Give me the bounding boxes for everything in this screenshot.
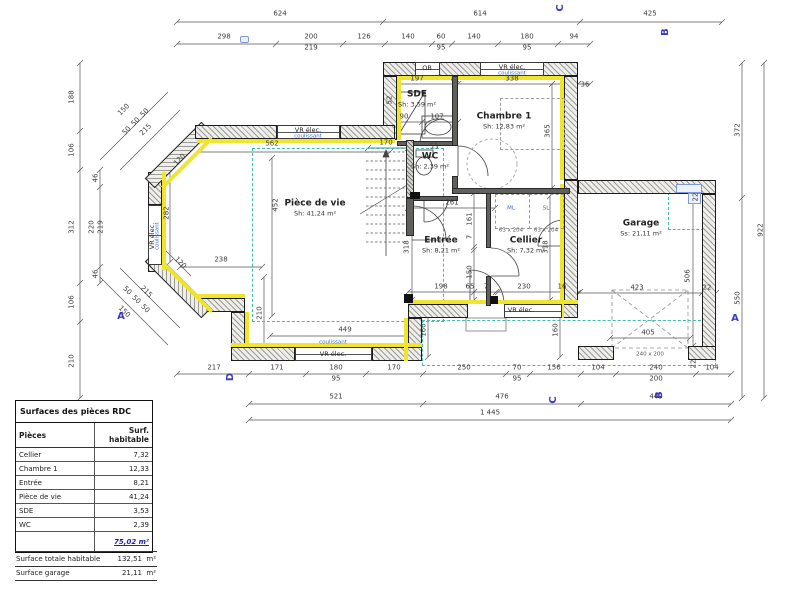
room-area: Sh: 8,21 m² (422, 247, 460, 255)
summary-value: 21,11 (122, 569, 142, 577)
dimension-label: 104 (591, 365, 604, 372)
room-area: Sh: 41,24 m² (284, 210, 345, 218)
dimension-label: 550 (735, 291, 742, 304)
dimension-label: 46 (93, 270, 100, 279)
dimension-label: 180 (329, 365, 342, 372)
table-cell: SDE (16, 504, 95, 518)
wall-bottom-cellier (562, 304, 578, 318)
dimension-label: 298 (217, 34, 230, 41)
dimension-label: 219 (98, 220, 105, 233)
wall-garage-bottom-left (578, 346, 614, 360)
dimension-label: 219 (304, 45, 317, 52)
table-row: Chambre 112,33 (16, 462, 152, 476)
plan-graphic: 75,02 m² (16, 532, 152, 553)
dimension-label: 46 (93, 174, 100, 183)
dimension-label: 94 (570, 34, 579, 41)
dimension-label: 365 (545, 124, 552, 137)
room-area: Sh: 2,39 m² (411, 163, 449, 171)
wall-step-left (231, 312, 245, 347)
dimension-label: 250 (457, 365, 470, 372)
dimension-label: 7 (484, 284, 488, 291)
dimension-label: 95 (437, 45, 446, 52)
dimension-label: 449 (338, 327, 351, 334)
table-cell: 3,53 (95, 504, 152, 518)
floor-plan-sheet: Surfaces des pièces RDC Pièces Surf. hab… (0, 0, 800, 600)
revision-tag-icon (240, 36, 249, 43)
summary-unit: m² (142, 555, 156, 563)
table-cell: WC (16, 518, 95, 532)
room-area: Ss: 21,11 m² (620, 230, 661, 238)
plan-graphic (420, 119, 444, 143)
dimension-label: 140 (467, 34, 480, 41)
table-row: SDE3,53 (16, 504, 152, 518)
dimension-label: 95 (332, 376, 341, 383)
dimension-label: 170 (387, 365, 400, 372)
dimension-label: 452 (273, 198, 280, 211)
insulation (197, 294, 245, 298)
dimension-label: 200 (304, 34, 317, 41)
dimension-label: 150 (467, 265, 474, 278)
table-row: Entrée8,21 (16, 476, 152, 490)
dimension-label: 156 (547, 365, 560, 372)
dimension-label: 161 (467, 212, 474, 225)
dimension-label: 95 (513, 376, 522, 383)
dimension-label: 220 (89, 220, 96, 233)
dimension-label: 318 (404, 240, 411, 253)
room-label-cellier: CellierSh: 7,32 m² (507, 236, 545, 255)
dimension-label: 106 (69, 143, 76, 156)
room-label-chambre-1: Chambre 1Sh: 12,83 m² (477, 112, 532, 131)
annotation-label: 240 x 200 (636, 352, 664, 358)
wall-bottom-living-right (372, 347, 422, 361)
room-label-pi-ce-de-vie: Pièce de vieSh: 41,24 m² (284, 199, 345, 218)
dimension-label: 70 (513, 365, 522, 372)
dimension-label: 282 (164, 206, 171, 219)
plan-graphic (425, 119, 451, 135)
annotation-label: 63 x 204 (534, 228, 558, 234)
dimension-label: 106 (69, 295, 76, 308)
room-area: Sh: 12,83 m² (477, 123, 532, 131)
annotation-label: OB (422, 65, 432, 72)
terrace-projection-dashed (422, 320, 716, 366)
table-cell: Entrée (16, 476, 95, 490)
room-area: Sh: 7,32 m² (507, 247, 545, 255)
wall-cellier-garage (564, 180, 578, 318)
dimension-label: 210 (257, 306, 264, 319)
wall-bottom-entree (408, 304, 468, 318)
section-marker-a: A (731, 314, 739, 324)
dimension-label: 198 (434, 284, 447, 291)
surface-total: 75,02 m² (95, 532, 152, 553)
dimension-label: 624 (273, 11, 286, 18)
dimension-label: 170 (379, 140, 392, 147)
plan-graphic: Pièces Surf. habitable (16, 423, 152, 448)
dimension-label: 506 (685, 269, 692, 282)
dimension-label: 140 (401, 34, 414, 41)
plan-graphic (16, 532, 95, 553)
plan-graphic: Cellier7,32Chambre 112,33Entrée8,21Pièce… (16, 448, 152, 532)
col-pieces: Pièces (16, 423, 95, 448)
ceiling-projection-dashed (252, 148, 444, 322)
section-marker-a: A (117, 312, 125, 322)
dimension-label: 230 (517, 284, 530, 291)
partition-cellier-left-upper (486, 193, 491, 248)
dimension-label: 922 (758, 223, 765, 236)
dimension-label: 425 (643, 11, 656, 18)
room-name: Entrée (422, 236, 460, 246)
dimension-label: 65 (466, 284, 475, 291)
table-cell: 41,24 (95, 490, 152, 504)
dimension-label: 614 (473, 11, 486, 18)
surface-table: Surfaces des pièces RDC Pièces Surf. hab… (15, 400, 153, 553)
surface-table-title: Surfaces des pièces RDC (16, 401, 152, 423)
dimension-label: 16 (558, 284, 567, 291)
table-row: Cellier7,32 (16, 448, 152, 462)
room-area: Sh: 3,59 m² (398, 101, 436, 109)
table-cell: Cellier (16, 448, 95, 462)
dimension-label: 160 (421, 323, 428, 336)
surface-table-grid: Pièces Surf. habitable Cellier7,32Chambr… (16, 423, 152, 552)
partition-bedroom-left-upper (452, 76, 458, 146)
dimension-label: 160 (553, 323, 560, 336)
dimension-label: 405 (641, 330, 654, 337)
table-cell: 2,39 (95, 518, 152, 532)
annotation-blue: coulissant (294, 134, 322, 140)
dimension-label: 7 (467, 235, 474, 239)
dimension-label: 36 (581, 82, 590, 89)
table-cell: 12,33 (95, 462, 152, 476)
dimension-label: 53 (430, 144, 439, 151)
dimension-label: 423 (630, 285, 643, 292)
dimension-label: 238 (214, 257, 227, 264)
section-marker-d: D (226, 373, 236, 381)
dimension-label: 7 (450, 76, 454, 83)
dimension-label: 476 (495, 394, 508, 401)
summary-row: Surface garage21,11m² (15, 566, 157, 581)
wall-garage-right (702, 194, 716, 360)
dimension-label: 240 (649, 365, 662, 372)
annotation-label: 63 x 204 (499, 228, 523, 234)
section-marker-b: B (655, 391, 665, 399)
dimension-label: 562 (265, 141, 278, 148)
plan-graphic (458, 146, 488, 176)
table-cell: Chambre 1 (16, 462, 95, 476)
room-name: Cellier (507, 236, 545, 246)
room-name: WC (411, 152, 449, 162)
dimension-label: 22 (691, 360, 698, 369)
annotation-label: VR élec. (508, 307, 534, 314)
dimension-label: 52 (387, 96, 394, 105)
annotation-label: VR élec. (320, 351, 346, 358)
room-label-wc: WCSh: 2,39 m² (411, 152, 449, 171)
plan-graphic: Pièces Surf. habitable (16, 423, 152, 448)
plan-graphic: 75,02 m² (16, 532, 152, 553)
post (410, 192, 420, 199)
summary-row: Surface totale habitable132,51m² (15, 551, 157, 567)
room-name: Pièce de vie (284, 199, 345, 209)
table-row: WC2,39 (16, 518, 152, 532)
dimension-label: 126 (357, 34, 370, 41)
summary-label: Surface totale habitable (16, 555, 100, 563)
dimension-label: 107 (430, 114, 443, 121)
section-marker-b: B (661, 28, 671, 36)
room-name: Chambre 1 (477, 112, 532, 122)
section-marker-c: C (556, 4, 566, 11)
room-label-garage: GarageSs: 21,11 m² (620, 219, 661, 238)
dimension-label: 200 (649, 376, 662, 383)
wall-bottom-living-left (231, 347, 295, 361)
insulation (404, 318, 408, 361)
dimension-label: 210 (69, 354, 76, 367)
wall-top-living-left (195, 125, 277, 139)
table-cell: 8,21 (95, 476, 152, 490)
dimension-label: 312 (69, 220, 76, 233)
annotation-blue: coulissant (319, 340, 347, 346)
dimension-label: 217 (207, 365, 220, 372)
annotation-blue: ML (507, 206, 515, 212)
dimension-label: 95 (523, 45, 532, 52)
dimension-label: 180 (520, 34, 533, 41)
dimension-label: 188 (69, 90, 76, 103)
dimension-label: 521 (329, 394, 342, 401)
dimension-label: 261 (445, 200, 458, 207)
annotation-blue: coulissant (498, 71, 526, 77)
table-cell: 7,32 (95, 448, 152, 462)
room-label-entr-e: EntréeSh: 8,21 m² (422, 236, 460, 255)
wall-garage-bottom-right (688, 346, 716, 360)
wall-right-house (564, 76, 578, 180)
dimension-label: 372 (735, 123, 742, 136)
summary-label: Surface garage (16, 569, 70, 577)
dimension-label: 22 (693, 193, 700, 202)
summary-unit: m² (142, 569, 156, 577)
room-name: Garage (620, 219, 661, 229)
insulation (245, 312, 249, 347)
partition-entree-left (406, 198, 414, 236)
room-name: SDE (398, 90, 436, 100)
dimension-label: 197 (410, 76, 423, 83)
table-row: Pièce de vie41,24 (16, 490, 152, 504)
dimension-label: 171 (270, 365, 283, 372)
post (490, 296, 498, 304)
summary-value: 132,51 (118, 555, 143, 563)
dimension-label: 90 (400, 114, 409, 121)
dimension-label: 1 445 (480, 410, 500, 417)
wall-top-living-right (340, 125, 395, 139)
annotation-blue: SL (543, 206, 550, 212)
dimension-label: 22 (703, 285, 712, 292)
dimension-label: 104 (705, 365, 718, 372)
room-label-sde: SDESh: 3,59 m² (398, 90, 436, 109)
section-marker-c: C (549, 396, 559, 403)
dimension-label: 60 (437, 34, 446, 41)
col-surface: Surf. habitable (95, 423, 152, 448)
post (404, 294, 413, 303)
table-cell: Pièce de vie (16, 490, 95, 504)
annotation-blue: coulissant (155, 222, 161, 250)
